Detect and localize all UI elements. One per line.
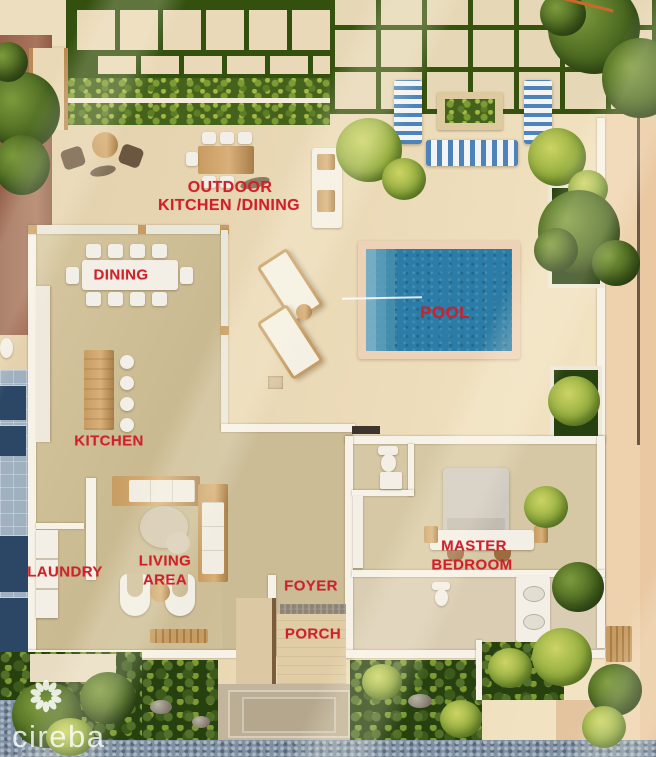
side-yard-unit — [0, 598, 28, 656]
dining-chair — [108, 292, 123, 306]
pool-step-1 — [366, 249, 376, 351]
dining-chair — [180, 267, 193, 284]
landscape-rock — [408, 694, 432, 708]
bar-stool — [120, 418, 134, 432]
cireba-brand-text: cireba — [12, 721, 105, 752]
entry-door-leaf — [352, 426, 380, 434]
wall-wc-vertical — [408, 444, 414, 496]
shrub-row-upper — [66, 78, 330, 98]
terrace-drain — [268, 376, 283, 389]
stair-stringer — [272, 598, 276, 688]
outdoor-dining-chair — [186, 152, 198, 166]
glass-post — [138, 225, 146, 234]
label-pool: POOL — [420, 303, 470, 323]
dining-chair — [86, 292, 101, 306]
laundry-appliance-seam — [36, 558, 58, 560]
right-planter-tree-2 — [592, 240, 640, 286]
cireba-flower-icon — [28, 678, 64, 714]
cireba-watermark: cireba — [12, 678, 105, 752]
laundry-appliance-seam — [36, 588, 58, 590]
label-kitchen: KITCHEN — [74, 433, 143, 450]
porch-floor — [277, 614, 346, 684]
dining-chair — [66, 267, 79, 284]
label-laundry: LAUNDRY — [27, 564, 103, 581]
outdoor-dining-table — [198, 146, 254, 174]
side-yard-unit — [0, 386, 26, 420]
entry-bench — [150, 629, 208, 643]
dining-chair — [152, 244, 167, 258]
wall-master-top — [345, 436, 605, 444]
outdoor-dining-chair — [220, 132, 234, 144]
front-step-innermost — [242, 697, 336, 733]
label-living-line2: AREA — [143, 572, 187, 589]
nightstand-right — [534, 526, 548, 543]
side-yard-unit — [0, 426, 26, 456]
pool-lounger-2 — [256, 304, 323, 381]
tree-mid-right — [534, 228, 578, 272]
foyer-threshold-stone — [280, 604, 346, 614]
dining-chair — [108, 244, 123, 258]
landscape-rock — [150, 700, 172, 714]
rug-ottoman-small — [166, 532, 190, 554]
vanity-sink — [523, 586, 545, 602]
master-bed-pillows — [447, 518, 505, 530]
palm-right-path — [532, 628, 592, 686]
palm-2 — [382, 158, 426, 200]
planter-edge-bath — [476, 640, 482, 700]
bar-stool — [120, 397, 134, 411]
sofa-cushions-vertical — [202, 502, 224, 574]
fire-planter-green — [445, 99, 495, 123]
wall-left — [28, 225, 36, 657]
label-porch: PORCH — [285, 626, 341, 643]
right-planter-bush — [548, 376, 600, 426]
fan-palm-bottom-right — [582, 706, 626, 748]
bush-porch-right-2 — [440, 700, 482, 738]
kitchen-island — [84, 350, 114, 430]
outdoor-kitchen-grill — [317, 154, 335, 170]
wall-laundry-top — [36, 523, 84, 529]
label-foyer: FOYER — [284, 578, 338, 595]
floor-plan: OUTDOOR KITCHEN /DINING DINING POOL KITC… — [0, 0, 656, 757]
label-outdoor-kitchen-line1: OUTDOOR — [188, 179, 273, 197]
outdoor-round-table — [92, 132, 118, 158]
bush-right-path-2 — [552, 562, 604, 612]
dining-chair — [86, 244, 101, 258]
outdoor-chair-1 — [59, 145, 86, 171]
paver-row-top — [77, 10, 330, 50]
pool-step-2 — [376, 249, 386, 351]
pool-step-3 — [386, 249, 395, 351]
outdoor-dining-chair — [238, 132, 252, 144]
striped-daybed — [426, 140, 518, 166]
glass-post — [28, 225, 37, 234]
dining-chair — [130, 292, 145, 306]
glass-wall-top — [28, 225, 228, 234]
side-yard-unit — [0, 536, 28, 592]
kitchen-counter — [36, 286, 50, 442]
vanity-sink — [523, 614, 545, 630]
nightstand-left — [424, 526, 438, 543]
wc-toilet-bowl — [381, 454, 396, 472]
lounger-side-table — [296, 304, 312, 320]
outdoor-dining-chair — [202, 132, 216, 144]
label-outdoor-kitchen-line2: KITCHEN /DINING — [158, 197, 300, 215]
outdoor-chair-2 — [117, 143, 145, 169]
bar-stool — [120, 355, 134, 369]
bush-right-path-1 — [524, 486, 568, 528]
shrub-row-lower — [66, 103, 330, 125]
wall-living-top — [221, 424, 355, 432]
glass-post — [220, 326, 229, 335]
wall-master-left — [345, 436, 353, 658]
label-master-line2: BEDROOM — [431, 557, 512, 574]
wall-master-right — [597, 436, 605, 648]
stair-rail-right — [64, 48, 68, 130]
sofa-cushions-horizontal — [129, 480, 195, 502]
label-living-line1: LIVING — [139, 553, 191, 570]
outdoor-kitchen-sink — [317, 190, 335, 212]
label-dining: DINING — [94, 267, 149, 284]
dining-chair — [152, 292, 167, 306]
dining-chair — [130, 244, 145, 258]
label-master-line1: MASTER — [441, 538, 507, 555]
bath-toilet-bowl — [435, 589, 448, 606]
bush-bath-side — [488, 648, 532, 688]
right-outer-wall — [640, 114, 656, 757]
interior-stairs — [236, 598, 274, 688]
landscape-rock — [192, 716, 210, 728]
garden-bench-right — [606, 626, 632, 662]
wc-sink — [380, 472, 402, 489]
master-wardrobe — [353, 496, 363, 568]
outdoor-table-base-shadow — [89, 163, 117, 178]
paver-row-second — [98, 56, 330, 74]
side-patio-chair — [0, 338, 13, 358]
bar-stool — [120, 376, 134, 390]
bush-porch-right-1 — [362, 664, 402, 700]
